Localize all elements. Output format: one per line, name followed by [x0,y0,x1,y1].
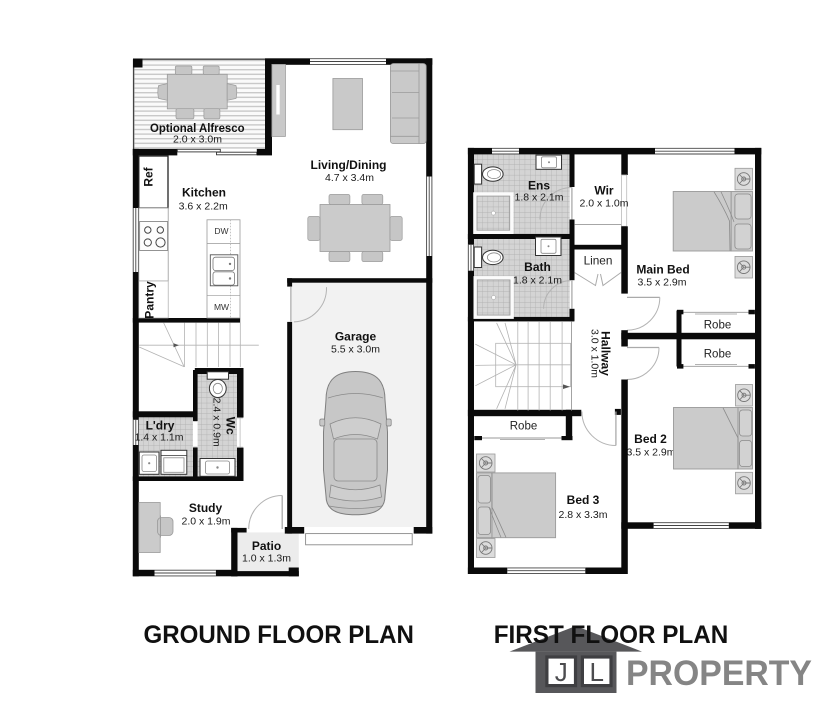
svg-text:Main Bed: Main Bed [636,263,689,277]
svg-text:2.0 x 3.0m: 2.0 x 3.0m [173,134,222,146]
svg-text:1.8 x 2.1m: 1.8 x 2.1m [514,192,563,204]
svg-text:Linen: Linen [584,254,613,268]
svg-text:Wir: Wir [594,184,614,198]
svg-text:1.0 x 1.3m: 1.0 x 1.3m [242,553,291,565]
svg-text:2.0 x 1.0m: 2.0 x 1.0m [579,198,628,210]
svg-text:Garage: Garage [335,330,377,344]
svg-text:L'dry: L'dry [146,419,175,433]
svg-text:1.4 x 1.1m: 1.4 x 1.1m [134,432,183,444]
svg-text:GROUND FLOOR PLAN: GROUND FLOOR PLAN [144,621,414,649]
svg-text:4.7 x 3.4m: 4.7 x 3.4m [325,172,374,184]
svg-text:Robe: Robe [704,349,732,361]
svg-text:PROPERTY: PROPERTY [626,654,812,693]
svg-text:1.8 x 2.1m: 1.8 x 2.1m [513,275,562,287]
svg-text:Study: Study [189,501,223,515]
svg-text:DW: DW [214,226,228,236]
svg-text:Kitchen: Kitchen [182,186,226,200]
svg-text:Bed 2: Bed 2 [634,432,667,446]
svg-text:L: L [589,657,603,687]
svg-text:Robe: Robe [510,421,538,433]
svg-text:Robe: Robe [704,320,732,332]
svg-text:3.5 x 2.9m: 3.5 x 2.9m [626,447,675,459]
svg-text:2.0 x 1.9m: 2.0 x 1.9m [181,516,230,528]
svg-text:FIRST FLOOR PLAN: FIRST FLOOR PLAN [494,621,729,649]
svg-text:Wc: Wc [223,417,237,435]
svg-text:Ref: Ref [142,166,156,186]
svg-text:Pantry: Pantry [143,281,157,319]
svg-text:Living/Dining: Living/Dining [311,158,387,172]
svg-text:3.0 x 1.0m: 3.0 x 1.0m [589,329,601,378]
svg-text:Patio: Patio [252,539,281,553]
svg-text:J: J [555,657,568,687]
svg-text:5.5 x 3.0m: 5.5 x 3.0m [331,344,380,356]
svg-text:Bed 3: Bed 3 [567,493,600,507]
svg-text:Bath: Bath [524,260,551,274]
svg-text:MW: MW [214,302,229,312]
svg-text:3.6 x 2.2m: 3.6 x 2.2m [179,201,228,213]
svg-text:Ens: Ens [528,179,550,193]
svg-text:3.5 x 2.9m: 3.5 x 2.9m [637,277,686,289]
svg-text:2.8 x 3.3m: 2.8 x 3.3m [558,509,607,521]
svg-text:2.4 x 0.9m: 2.4 x 0.9m [211,398,223,447]
